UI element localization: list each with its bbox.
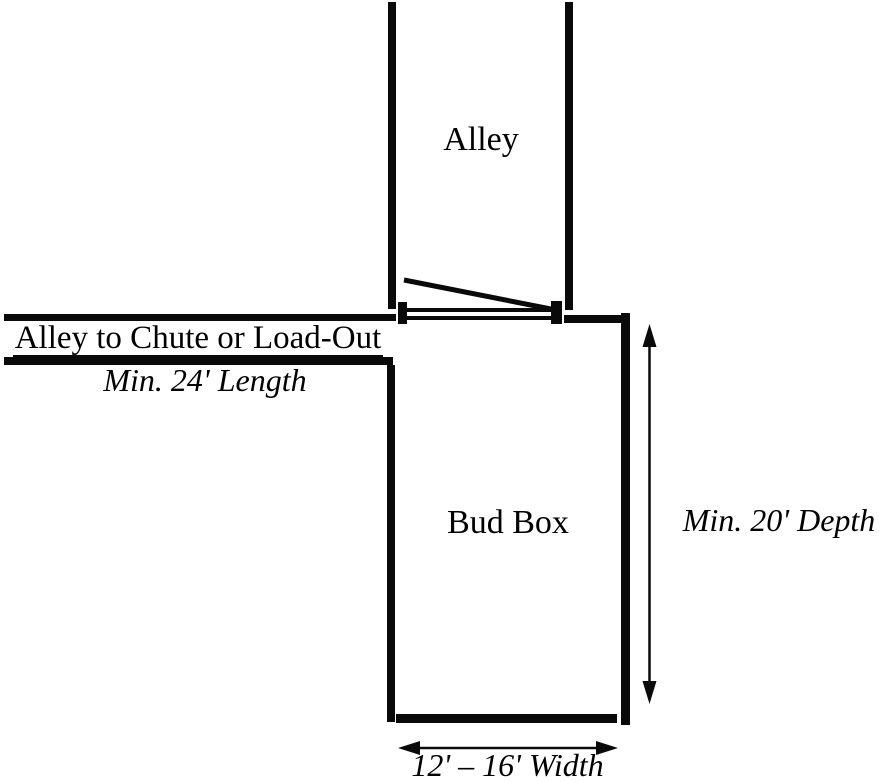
chute-lane-label: Alley to Chute or Load-Out [2, 321, 394, 357]
gate-swing-diagonal [399, 274, 561, 316]
chute-lane-length-dimension: Min. 24' Length [30, 362, 380, 398]
budbox-left-wall [387, 365, 395, 722]
alley-left-wall [388, 2, 396, 309]
budbox-top-right-wall-segment [564, 315, 621, 323]
alley-right-wall [565, 2, 573, 310]
gate-rail-bottom [407, 316, 551, 320]
budbox-right-wall [621, 313, 630, 725]
depth-dimension-arrow [637, 321, 662, 707]
alley-label: Alley [397, 122, 565, 158]
bud-box-facility-diagram: Alley Alley to Chute or Load-Out Min. 24… [0, 0, 882, 782]
depth-dimension-label: Min. 20' Depth [676, 502, 882, 538]
budbox-bottom-wall [396, 714, 617, 723]
chute-lane-label-text: Alley to Chute or Load-Out [13, 321, 384, 357]
width-dimension-label: 12' – 16' Width [397, 747, 618, 782]
budbox-label: Bud Box [395, 505, 621, 541]
